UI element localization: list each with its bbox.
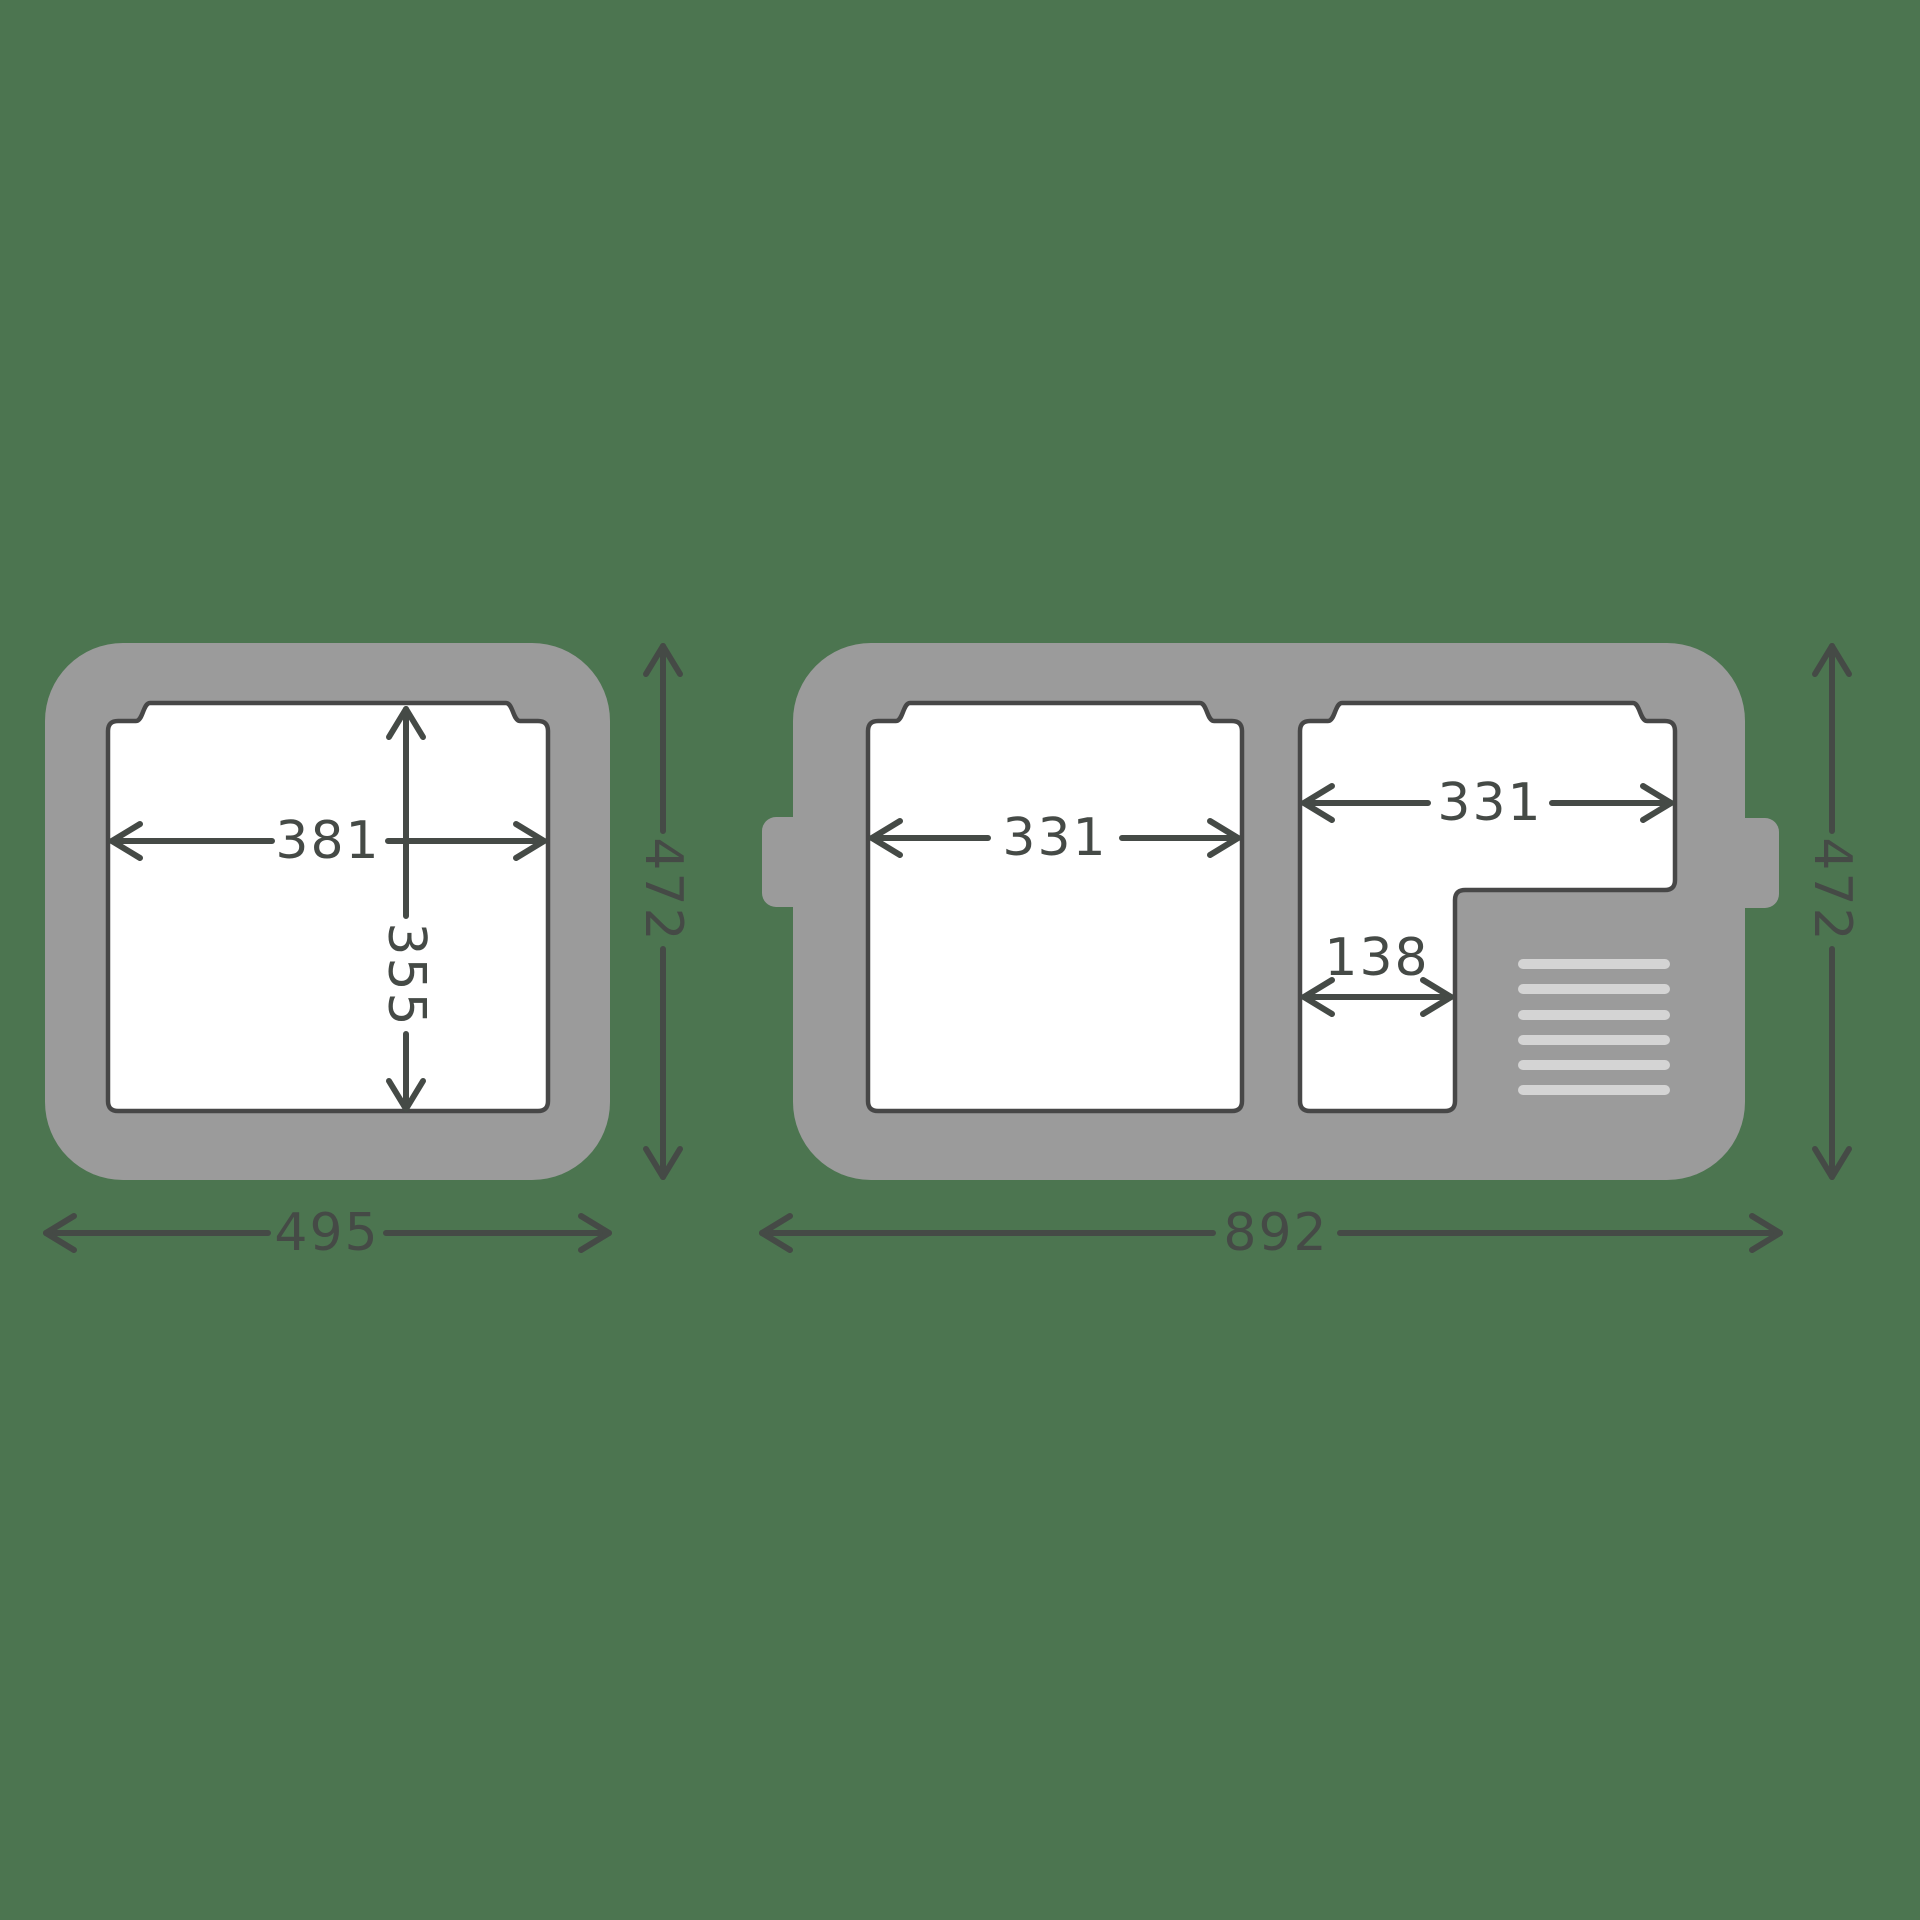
small-box-width-dimension: 495 xyxy=(46,1203,609,1263)
small-cavity-depth-label: 355 xyxy=(376,922,436,1027)
large-box-height-dimension: 472 xyxy=(1802,646,1862,1177)
left-compartment-width-label: 331 xyxy=(1002,808,1107,868)
right-compartment-width-label: 331 xyxy=(1437,773,1542,833)
vent-slat xyxy=(1518,1060,1670,1070)
vent-slat xyxy=(1518,1035,1670,1045)
small-box-height-dimension: 472 xyxy=(633,646,693,1177)
small-box-width-label: 495 xyxy=(274,1203,379,1263)
right-compartment-lower-width-label: 138 xyxy=(1324,928,1429,988)
vent-slat xyxy=(1518,1010,1670,1020)
small-box-height-label: 472 xyxy=(633,837,693,942)
large-box-width-label: 892 xyxy=(1223,1203,1328,1263)
vent-slat xyxy=(1518,984,1670,994)
vent-slat xyxy=(1518,1085,1670,1095)
large-box-height-label: 472 xyxy=(1802,837,1862,942)
vent-slat xyxy=(1518,959,1670,969)
dimension-diagram: 381 355 3 xyxy=(0,0,1920,1920)
large-box-left-compartment xyxy=(868,703,1242,1111)
large-cooler-top-view: 331 331 138 xyxy=(762,643,1779,1180)
small-box-cavity xyxy=(108,703,548,1111)
large-box-width-dimension: 892 xyxy=(762,1203,1780,1263)
small-cavity-width-label: 381 xyxy=(275,811,380,871)
small-cooler-top-view: 381 355 xyxy=(45,643,610,1180)
